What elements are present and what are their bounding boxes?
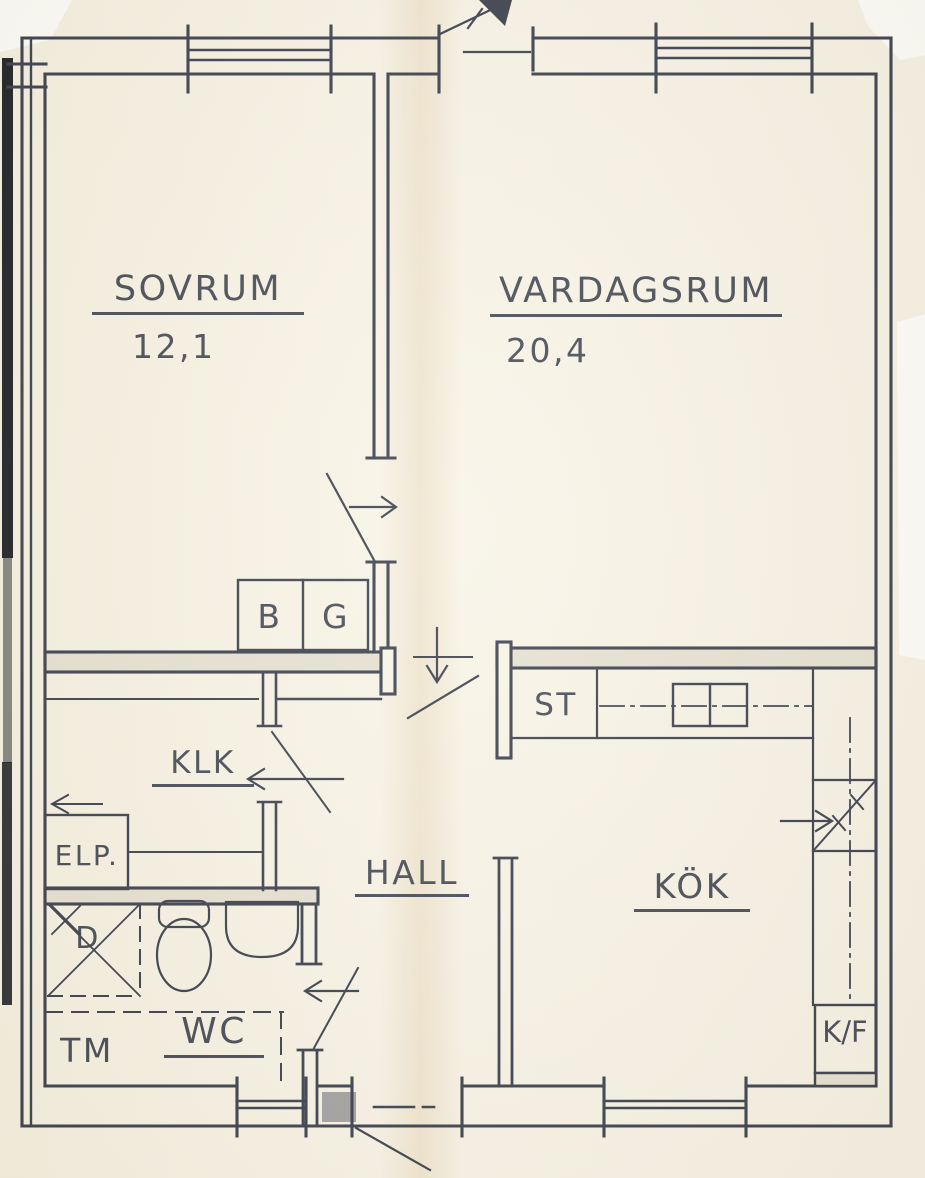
room-label-vardagsrum: VARDAGSRUM — [490, 274, 782, 317]
room-area-sovrum: 12,1 — [132, 330, 215, 363]
fixture-label-elp: ELP. — [47, 842, 127, 870]
room-area-vardagsrum: 20,4 — [506, 334, 589, 367]
scan-artifacts — [0, 0, 925, 1005]
door-klk — [248, 732, 343, 812]
closet-label-b: B — [240, 600, 300, 633]
room-label-kok: KÖK — [634, 870, 750, 912]
entry-door — [352, 1078, 462, 1170]
room-label-klk: KLK — [152, 748, 254, 787]
balcony-door — [439, 3, 533, 92]
wall-hall-kok — [494, 642, 517, 1086]
fixture-label-shower-d: D — [60, 924, 116, 954]
room-label-sovrum: SOVRUM — [92, 272, 304, 315]
room-label-wc: WC — [164, 1014, 264, 1058]
closet-label-g: G — [306, 600, 366, 633]
room-label-hall: HALL — [355, 856, 469, 897]
floor-plan-drawing — [0, 0, 925, 1178]
fixture-label-st: ST — [517, 690, 595, 721]
door-wc — [305, 968, 358, 1048]
fixture-label-tm: TM — [47, 1034, 127, 1067]
fixture-label-kf: K/F — [813, 1018, 877, 1047]
door-hall — [408, 628, 478, 718]
floor-plan: SOVRUM 12,1 VARDAGSRUM 20,4 KLK HALL KÖK… — [0, 0, 925, 1178]
door-sovrum — [327, 474, 396, 560]
wall-sovrum-vardagsrum — [367, 74, 395, 652]
wc-walls — [297, 904, 322, 1126]
toilet-symbol — [157, 901, 211, 991]
washbasin-symbol — [226, 902, 298, 957]
window-sovrum — [188, 26, 331, 92]
window-vardagsrum — [656, 24, 812, 92]
stove-symbol — [673, 684, 747, 726]
sink-symbol — [781, 780, 876, 851]
